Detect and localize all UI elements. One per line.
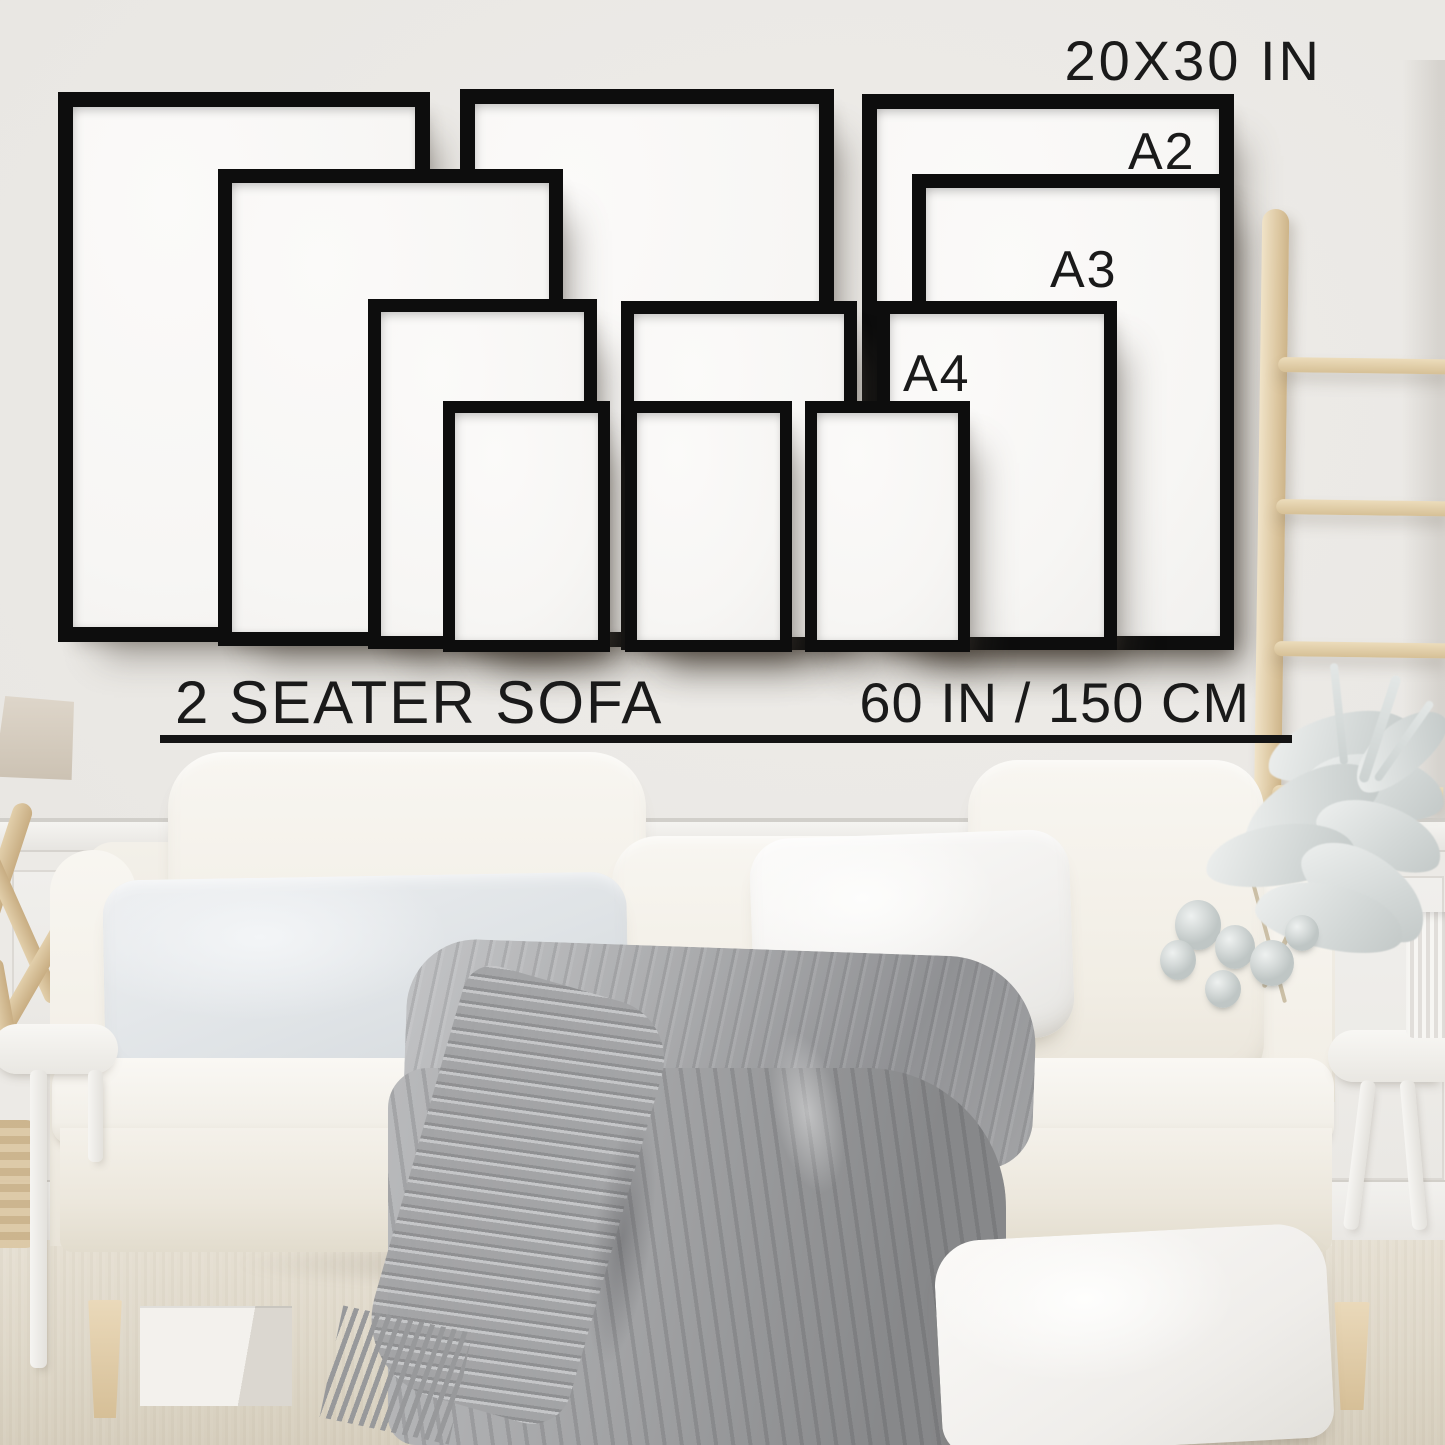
- side-table-left-top: [0, 1024, 118, 1074]
- plant-bud: [1160, 940, 1196, 980]
- frame-a4-middle: [625, 401, 792, 652]
- sofa-width-underline: [160, 735, 1292, 743]
- size-guide-photo: 20X30 IN A2 A3 A4 2 SEATER SOFA 60 IN / …: [0, 0, 1445, 1445]
- ladder-rung: [1276, 499, 1445, 516]
- size-label-a4: A4: [903, 344, 971, 404]
- frame-a4-left: [443, 401, 610, 652]
- size-label-a2: A2: [1128, 122, 1196, 182]
- size-heading-20x30: 20X30 IN: [1065, 28, 1323, 93]
- size-label-a3: A3: [1050, 240, 1118, 300]
- plant-bud: [1250, 940, 1294, 986]
- ladder-rung: [1278, 357, 1445, 374]
- sofa-label: 2 SEATER SOFA: [175, 668, 663, 737]
- side-table-left-leg: [88, 1070, 103, 1162]
- plant-bud: [1205, 970, 1241, 1008]
- plant-bud: [1285, 915, 1319, 951]
- lamp-shade: [0, 696, 74, 780]
- frame-a4-right: [805, 401, 970, 652]
- ladder-rung: [1274, 641, 1445, 658]
- side-table-left-leg: [30, 1070, 47, 1368]
- floor-pillow: [933, 1222, 1336, 1445]
- plant-bud: [1215, 925, 1255, 969]
- sofa-width-label: 60 IN / 150 CM: [859, 670, 1250, 735]
- storage-box-left: [140, 1306, 292, 1406]
